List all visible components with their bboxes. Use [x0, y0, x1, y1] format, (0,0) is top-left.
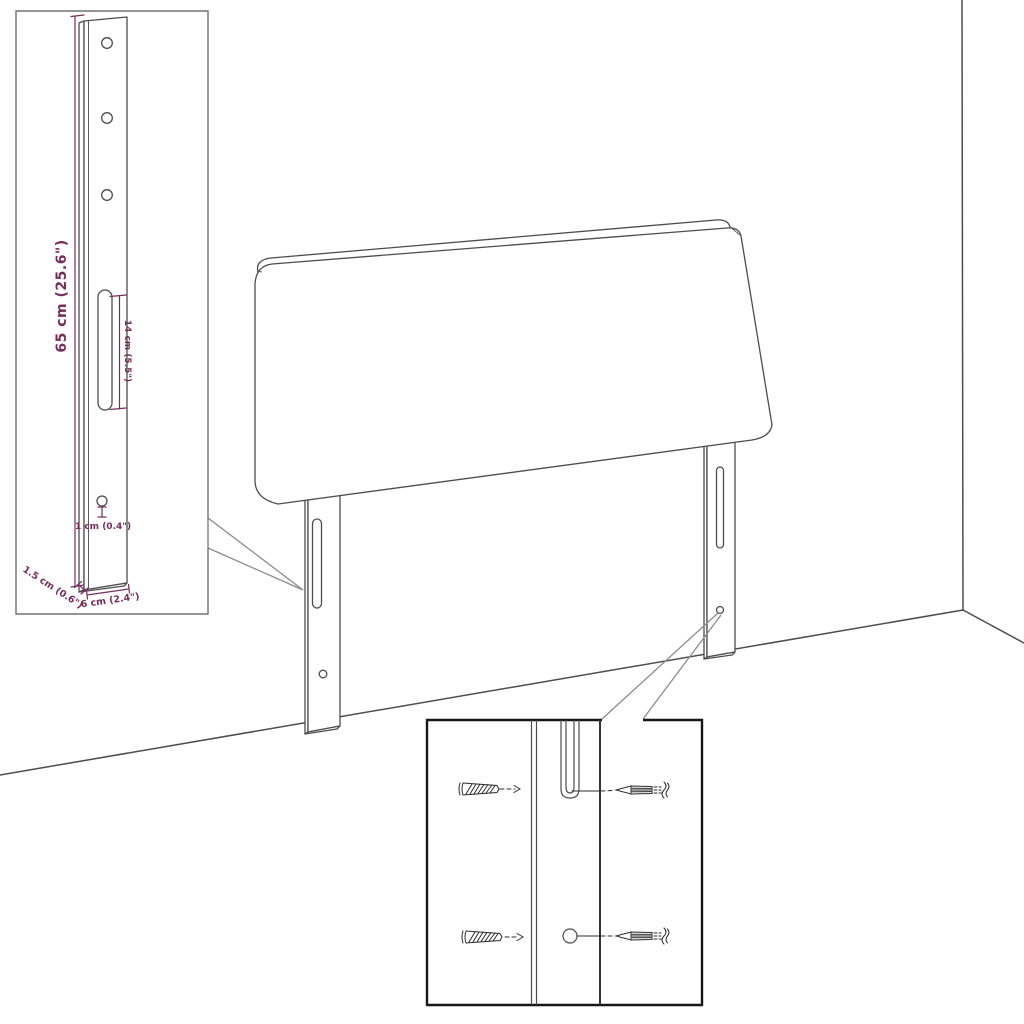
mount-detail-box-fill	[427, 720, 702, 1005]
diagram-canvas: 65 cm (25.6") 14 cm (5.5") 1 cm (0.4") 1…	[0, 0, 1024, 1024]
leg-detail-inset: 65 cm (25.6") 14 cm (5.5") 1 cm (0.4") 1…	[16, 11, 208, 614]
headboard-panel	[255, 220, 772, 504]
detail-leg-side-face	[79, 21, 84, 592]
wall-corner-line	[962, 0, 963, 610]
left-leg	[305, 491, 340, 734]
dim-label-slot-length: 14 cm (5.5")	[122, 320, 132, 382]
leg-cutouts	[313, 467, 724, 678]
mount-detail-leader-lines	[602, 613, 721, 719]
mount-detail-inset	[427, 720, 702, 1005]
leg-detail-leader-lines	[208, 518, 303, 590]
callout-leaders	[208, 518, 721, 719]
dim-label-overall-height: 65 cm (25.6")	[54, 239, 70, 352]
dim-label-hole-diameter: 1 cm (0.4")	[75, 522, 131, 532]
right-leg-front-face	[707, 437, 735, 657]
floor-line-right	[963, 610, 1024, 643]
headboard-front-face	[255, 228, 772, 504]
headboard-dimension-diagram: 65 cm (25.6") 14 cm (5.5") 1 cm (0.4") 1…	[0, 0, 1024, 1024]
